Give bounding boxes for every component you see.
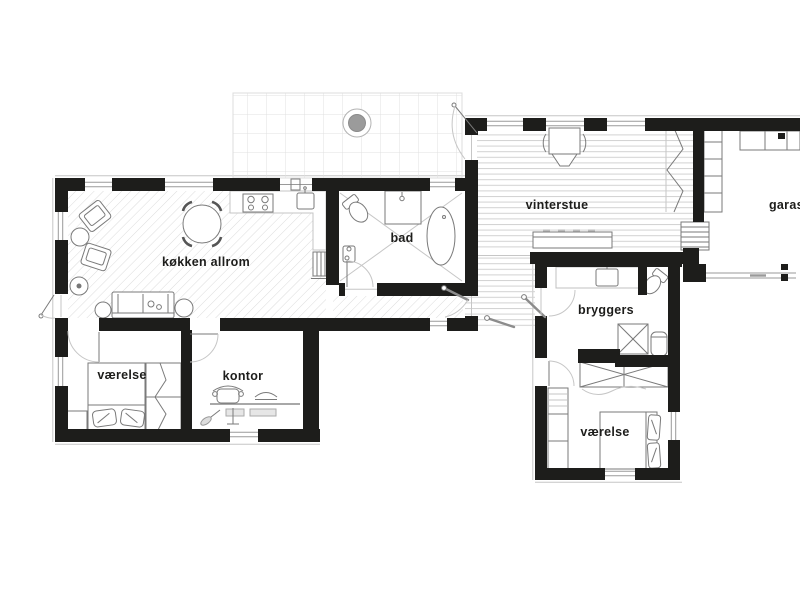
washing-machine: [618, 324, 648, 354]
floor-plan-page: vinterstue garasje køkken allrom bad vær…: [0, 0, 800, 591]
room-label-vinterstue: vinterstue: [526, 198, 589, 212]
fire-pit: [343, 109, 371, 137]
door-vaerelse-2: [549, 361, 574, 386]
shelving-2: [548, 388, 568, 470]
guest-chair: [255, 393, 277, 400]
door-vaerelse-1: [68, 331, 99, 362]
door-entrance: [39, 295, 61, 318]
toilet-icon: [342, 194, 372, 226]
hall-floor: [333, 296, 463, 318]
floor-lamp: [70, 277, 88, 295]
bathroom-sink: [343, 246, 355, 262]
garage-cabinets: [740, 131, 800, 150]
desk: [210, 404, 300, 424]
garage-opening: [704, 264, 796, 281]
bryggers-basin: [651, 332, 667, 356]
garage-steps: [681, 222, 709, 250]
nightstand: [67, 411, 87, 431]
office-chair: [213, 386, 244, 403]
shower: [385, 191, 421, 224]
sofa-side-table-2: [175, 299, 193, 317]
vinterstue-bench: [533, 230, 612, 249]
terrace-tiles: [233, 93, 462, 178]
room-label-bryggers: bryggers: [578, 303, 634, 317]
bathtub: [427, 207, 455, 265]
room-label-kokken-allrom: køkken allrom: [162, 255, 250, 269]
sofa: [112, 292, 174, 318]
room-label-vaerelse-1: værelse: [97, 368, 146, 382]
room-label-garasje: garasje: [769, 198, 800, 212]
sofa-side-table-1: [95, 302, 111, 318]
door-bad: [345, 256, 377, 289]
door-bryggers: [541, 288, 575, 316]
terrace: [233, 93, 462, 178]
room-label-kontor: kontor: [223, 369, 264, 383]
garage-shelves: [704, 125, 722, 212]
bed-2: [600, 412, 661, 469]
room-label-vaerelse-2: værelse: [580, 425, 629, 439]
wardrobe-1: [146, 363, 181, 430]
desk-lamp: [199, 410, 220, 427]
floor-plan-canvas: vinterstue garasje køkken allrom bad vær…: [0, 0, 800, 591]
door-kontor: [190, 334, 218, 362]
side-table: [71, 228, 89, 246]
room-label-bad: bad: [390, 231, 413, 245]
